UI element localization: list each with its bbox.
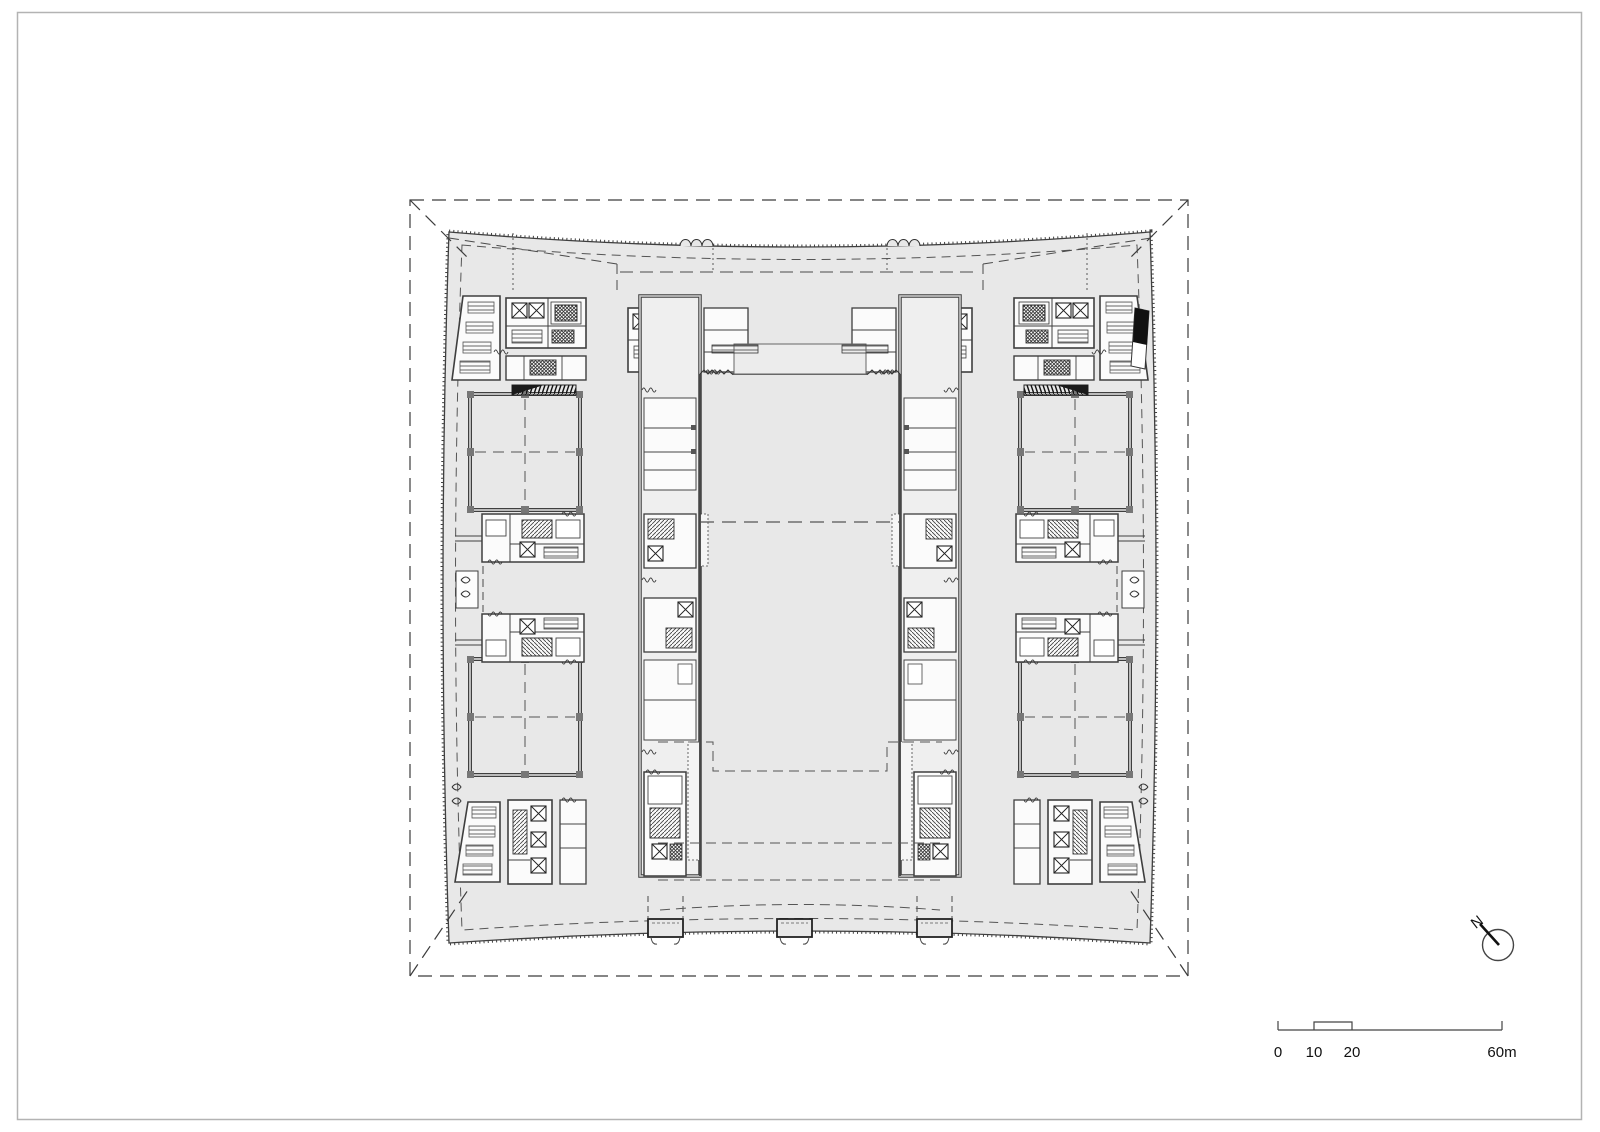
scale-label-10: 10 [1306, 1044, 1323, 1061]
bottom-porch-centre [777, 919, 812, 944]
scale-bar-line [1278, 1021, 1502, 1030]
corner-cluster-top-left [452, 296, 586, 380]
north-arrow: N [1468, 912, 1514, 960]
mid-core-cluster-left-upper [482, 512, 584, 564]
bottom-porch-left [648, 919, 683, 944]
drawing-sheet: N 0 10 20 60m [0, 0, 1600, 1132]
scale-label-20: 20 [1344, 1044, 1361, 1061]
scale-bar: 0 10 20 60m [1274, 1021, 1517, 1061]
entrance-canopy-scallops [680, 240, 713, 247]
mid-core-cluster-left-lower [482, 612, 584, 664]
square-room-lower-left [467, 650, 583, 778]
square-room-upper-left [467, 385, 583, 513]
corner-cluster-bottom-left [455, 798, 586, 884]
scale-label-60m: 60m [1487, 1044, 1516, 1061]
scale-label-0: 0 [1274, 1044, 1282, 1061]
facade-notch-left [456, 571, 478, 608]
